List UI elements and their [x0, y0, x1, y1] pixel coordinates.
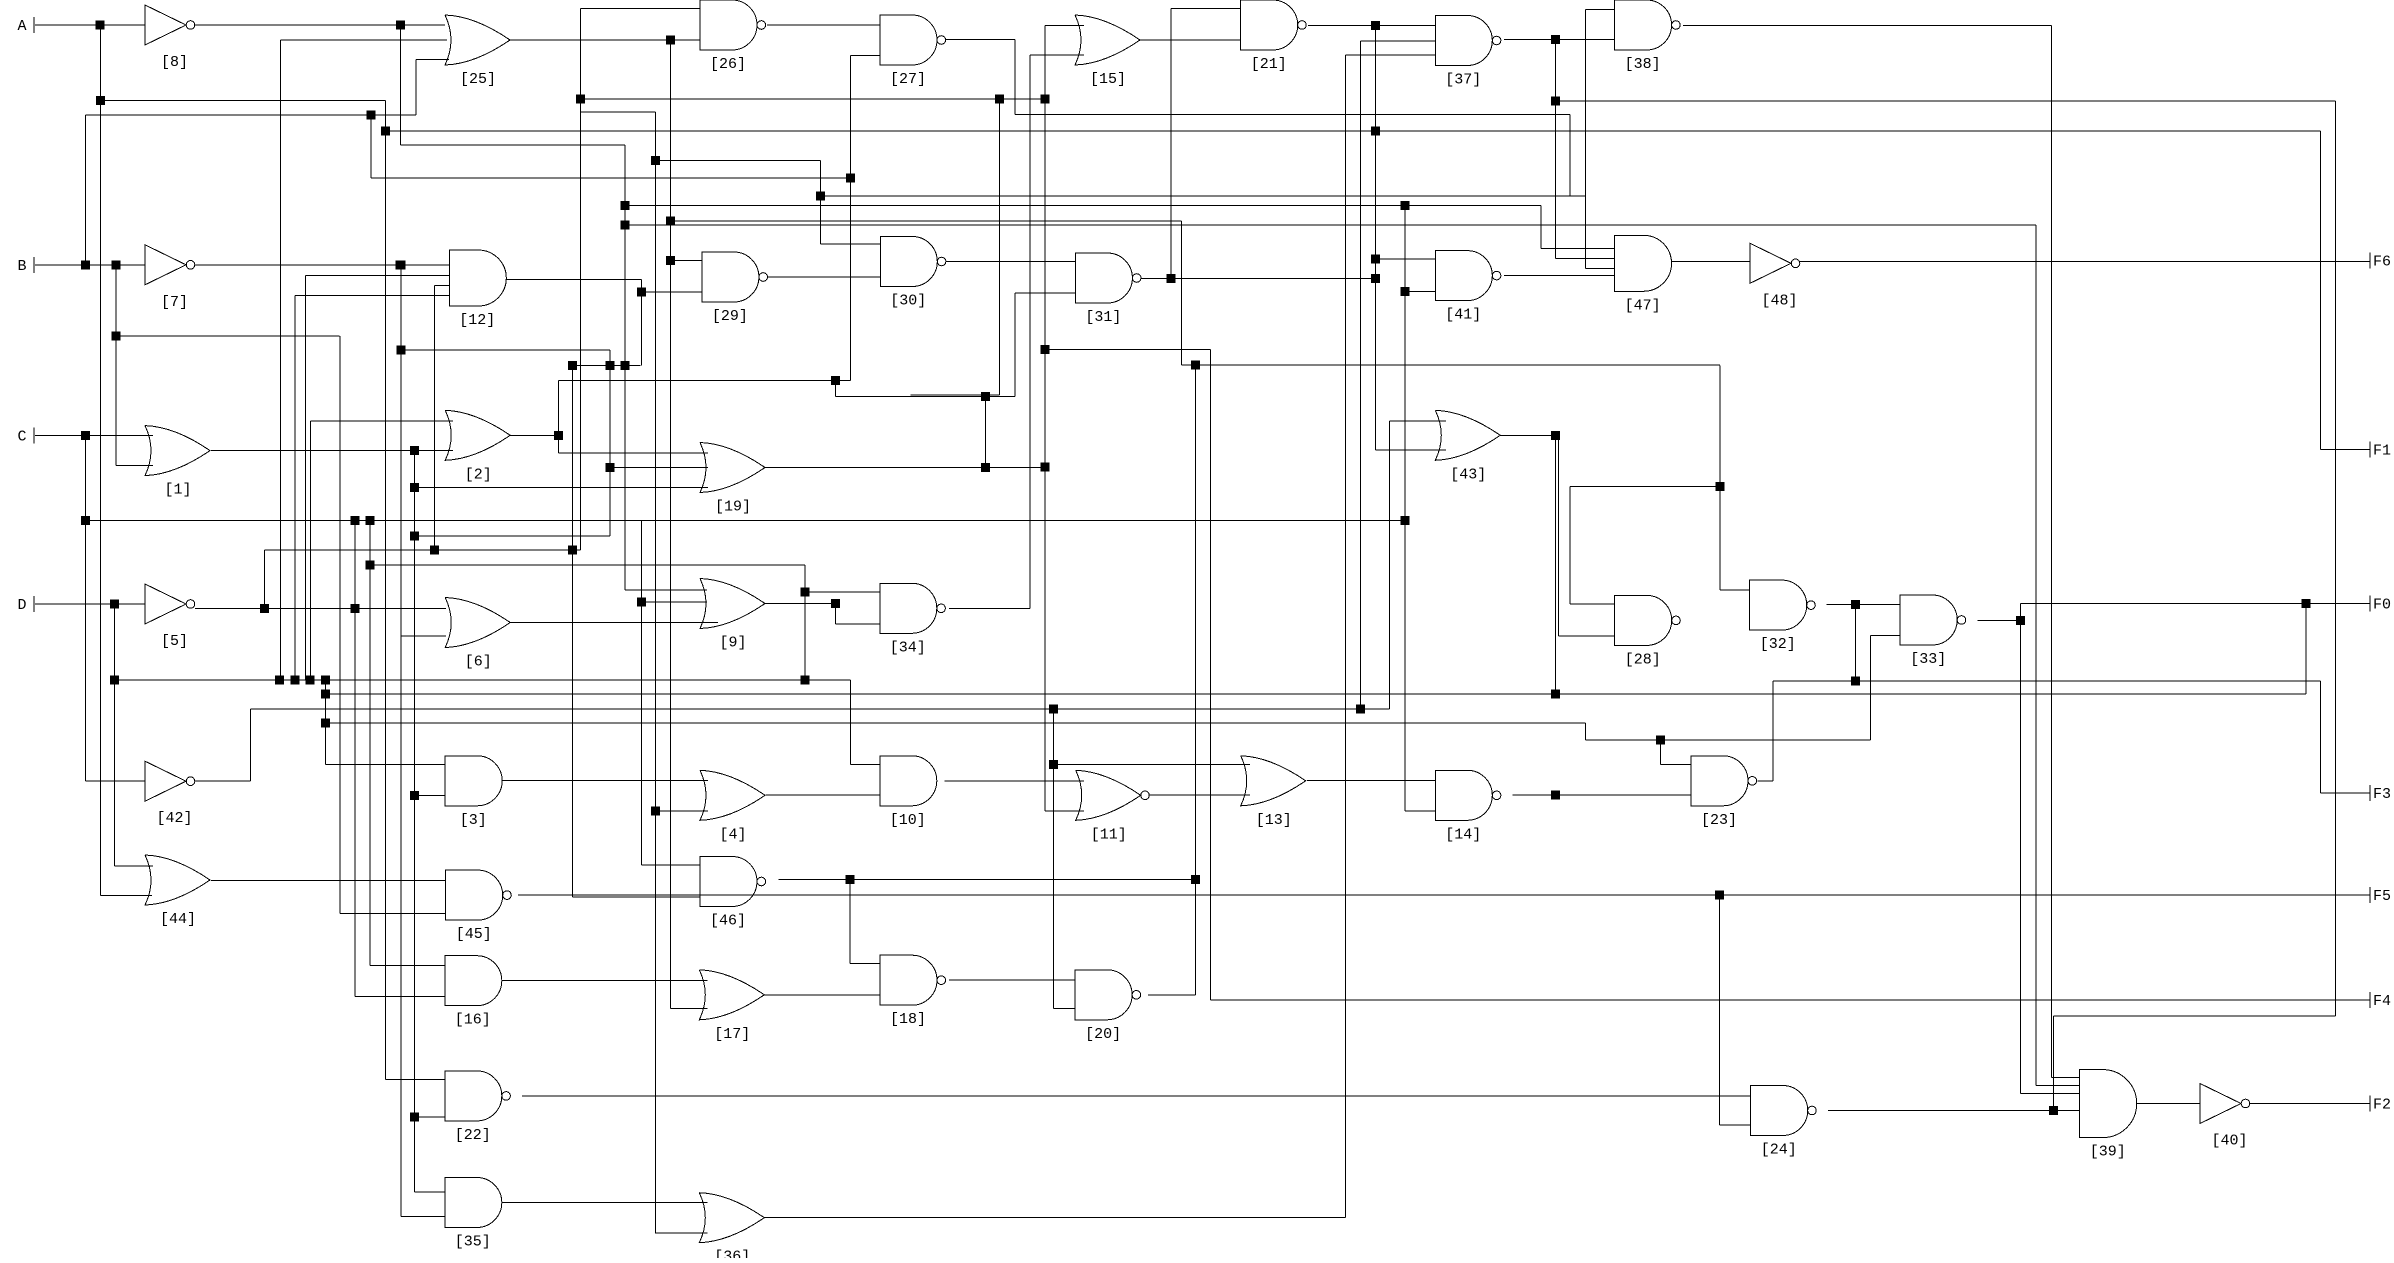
svg-text:F5: F5 — [2373, 888, 2391, 905]
svg-text:[31]: [31] — [1085, 309, 1121, 326]
svg-text:[13]: [13] — [1256, 812, 1292, 829]
svg-text:[18]: [18] — [890, 1011, 926, 1028]
svg-text:F2: F2 — [2373, 1097, 2391, 1114]
svg-text:[19]: [19] — [715, 499, 751, 516]
svg-text:F6: F6 — [2373, 254, 2391, 271]
svg-text:[10]: [10] — [890, 812, 926, 829]
svg-text:[2]: [2] — [465, 466, 492, 483]
svg-text:[15]: [15] — [1090, 71, 1126, 88]
svg-text:C: C — [17, 429, 26, 446]
svg-text:[23]: [23] — [1701, 812, 1737, 829]
svg-text:[6]: [6] — [465, 654, 492, 671]
svg-text:[28]: [28] — [1625, 651, 1661, 668]
svg-text:[16]: [16] — [455, 1012, 491, 1029]
svg-text:[40]: [40] — [2211, 1133, 2247, 1150]
svg-text:[4]: [4] — [719, 826, 746, 843]
svg-text:[47]: [47] — [1625, 297, 1661, 314]
svg-text:[5]: [5] — [161, 633, 188, 650]
svg-text:[26]: [26] — [710, 56, 746, 73]
svg-text:F1: F1 — [2373, 443, 2391, 460]
svg-text:[22]: [22] — [455, 1127, 491, 1144]
svg-text:[8]: [8] — [161, 54, 188, 71]
svg-text:[27]: [27] — [890, 71, 926, 88]
svg-text:[38]: [38] — [1625, 56, 1661, 73]
svg-text:[3]: [3] — [460, 812, 487, 829]
svg-text:[32]: [32] — [1760, 636, 1796, 653]
svg-text:[1]: [1] — [164, 482, 191, 499]
svg-text:F0: F0 — [2373, 596, 2391, 613]
svg-text:[7]: [7] — [161, 294, 188, 311]
svg-text:A: A — [17, 18, 26, 35]
svg-text:[29]: [29] — [712, 308, 748, 325]
svg-text:D: D — [17, 597, 26, 614]
svg-text:[34]: [34] — [890, 639, 926, 656]
svg-text:F3: F3 — [2373, 786, 2391, 803]
svg-text:[30]: [30] — [890, 293, 926, 310]
svg-text:[24]: [24] — [1761, 1142, 1797, 1159]
svg-text:[17]: [17] — [714, 1026, 750, 1043]
svg-text:B: B — [17, 258, 26, 275]
svg-text:[20]: [20] — [1085, 1026, 1121, 1043]
svg-text:[48]: [48] — [1761, 292, 1797, 309]
svg-text:[44]: [44] — [160, 911, 196, 928]
svg-text:[39]: [39] — [2090, 1144, 2126, 1161]
svg-text:F4: F4 — [2373, 993, 2391, 1010]
svg-text:[11]: [11] — [1091, 826, 1127, 843]
svg-text:[33]: [33] — [1910, 651, 1946, 668]
svg-text:[21]: [21] — [1251, 56, 1287, 73]
svg-text:[37]: [37] — [1445, 72, 1481, 89]
svg-text:[41]: [41] — [1445, 307, 1481, 324]
svg-text:[36]: [36] — [714, 1249, 750, 1258]
svg-text:[9]: [9] — [719, 635, 746, 652]
svg-text:[45]: [45] — [456, 926, 492, 943]
svg-text:[14]: [14] — [1445, 826, 1481, 843]
svg-text:[43]: [43] — [1450, 466, 1486, 483]
svg-text:[46]: [46] — [710, 913, 746, 930]
svg-text:[25]: [25] — [460, 71, 496, 88]
svg-text:[35]: [35] — [455, 1234, 491, 1251]
svg-text:[12]: [12] — [459, 312, 495, 329]
svg-text:[42]: [42] — [156, 810, 192, 827]
